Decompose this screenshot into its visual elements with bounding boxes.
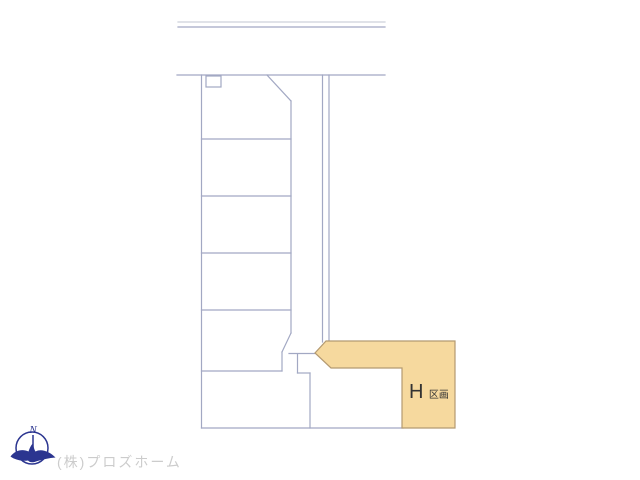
lot6-corner-cut [282,333,291,352]
lot-column [202,75,404,428]
compass-bird-icon [11,444,56,463]
compass: N [11,424,56,464]
utility-box [206,76,221,87]
company-watermark: (株)プロズホーム [57,454,182,470]
compass-north-label: N [28,424,37,436]
parcel-h-label-main: H [409,381,423,403]
path-boundary [323,75,330,342]
bottom-lot-detail [289,354,315,429]
parcel-h-label-suffix: 区画 [429,389,449,401]
lot1-corner-cut [267,75,291,101]
road-edge [178,22,385,27]
parcel-h-highlight [315,341,455,428]
site-plan: H 区画 N (株)プロズホーム [0,0,640,480]
